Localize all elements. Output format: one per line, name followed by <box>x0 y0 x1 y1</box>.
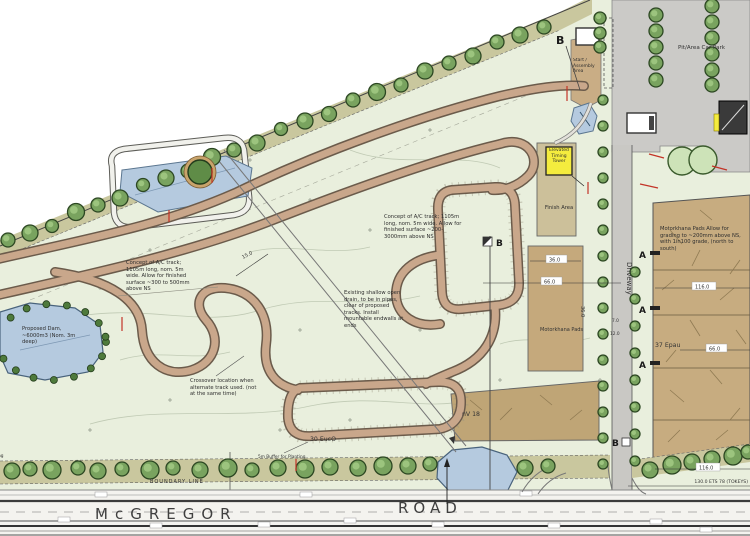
tree-icon <box>322 107 337 122</box>
pit-car-park-area <box>612 0 750 172</box>
dam-ring-tree-icon <box>43 301 50 308</box>
motorkhana-pads-rect <box>528 246 583 371</box>
tree-icon <box>649 24 663 38</box>
dam-ring-tree-icon <box>63 302 70 309</box>
tree-icon <box>642 462 658 478</box>
dim-116: 116.0 <box>695 285 709 291</box>
timing-tower-text: Elevated Timing Tower <box>547 148 571 165</box>
tree-icon <box>630 402 640 412</box>
tree-icon <box>91 198 105 212</box>
tree-icon <box>275 123 288 136</box>
tree-icon <box>598 381 608 391</box>
driveway-road <box>612 145 632 512</box>
dim-12: 12.0 <box>610 331 620 337</box>
start-assembly-label: Start / Assembly Area <box>573 58 599 98</box>
tree-icon <box>649 56 663 70</box>
euc-label: 30 EucO <box>310 436 336 443</box>
buffer-planting-label: 5m Buffer for Planting <box>258 454 306 460</box>
tree-icon <box>374 457 392 475</box>
dam-ring-tree-icon <box>30 374 37 381</box>
road-name-mcgregor: McGREGOR <box>95 505 238 523</box>
tree-icon <box>71 461 85 475</box>
tree-icon <box>4 463 20 479</box>
tree-icon <box>598 329 608 339</box>
tree-icon <box>442 56 456 70</box>
tree-icon <box>598 121 608 131</box>
marker-b-top: B <box>556 34 564 47</box>
tree-icon <box>705 78 719 92</box>
dam-ring-tree-icon <box>12 367 19 374</box>
tree-icon <box>630 321 640 331</box>
note-crossover: Crossover location when alternate track … <box>190 378 258 426</box>
tree-icon <box>598 433 608 443</box>
tree-icon <box>630 456 640 466</box>
tree-icon <box>598 95 608 105</box>
tree-icon <box>90 463 106 479</box>
dam-ring-tree-icon <box>99 353 106 360</box>
tree-icon <box>400 458 416 474</box>
tree-icon <box>630 348 640 358</box>
tree-icon <box>630 429 640 439</box>
tree-icon <box>68 204 85 221</box>
marker-a-3: A <box>639 361 646 371</box>
tree-icon <box>350 460 366 476</box>
note-existing-drain: Existing shallow open drain, to be in pi… <box>344 290 404 362</box>
tree-icon <box>630 294 640 304</box>
dam-ring-tree-icon <box>50 376 57 383</box>
tree-icon <box>724 447 742 465</box>
buffer-planting-label: 5m Buffer for Planting <box>0 453 4 459</box>
dim-116b: 116.0 <box>699 466 713 472</box>
site-plan: Elevated Timing Tower Concept of A/C tra… <box>0 0 750 536</box>
tree-icon <box>649 8 663 22</box>
dam-ring-tree-icon <box>23 305 30 312</box>
tree-icon <box>663 456 681 474</box>
site-plan-canvas: Elevated Timing Tower Concept of A/C tra… <box>0 0 750 536</box>
tree-icon <box>594 12 606 24</box>
tree-icon <box>322 459 338 475</box>
motorkhana-pads-label: Motorkhana Pads <box>540 327 583 333</box>
tree-icon <box>296 460 314 478</box>
tree-icon <box>537 20 551 34</box>
tree-icon <box>598 199 608 209</box>
tree-icon <box>649 73 663 87</box>
tree-icon <box>141 461 159 479</box>
tree-icon <box>594 27 606 39</box>
dam-ring-tree-icon <box>102 333 109 340</box>
marker-a-1: A <box>639 251 646 261</box>
marker-b-bottom: B <box>612 439 619 449</box>
tree-icon <box>598 251 608 261</box>
tree-icon <box>112 190 128 206</box>
marker-b-mid: B <box>496 239 503 249</box>
tree-icon <box>741 445 750 459</box>
building-detail <box>649 116 654 130</box>
road-name-road: ROAD <box>398 499 462 517</box>
dim-7: 7.0 <box>612 318 619 324</box>
tree-icon <box>245 463 259 477</box>
tree-icon <box>423 457 437 471</box>
dam-ring-tree-icon <box>95 320 102 327</box>
timing-tower-label: Elevated Timing Tower <box>547 148 571 175</box>
tree-icon <box>598 277 608 287</box>
dam-ring-tree-icon <box>82 309 89 316</box>
dam-ring-tree-icon <box>0 355 7 362</box>
tree-icon <box>270 460 286 476</box>
note-proposed-dam: Proposed Dam, ~6000m3 (Nom. 3m deep) <box>22 326 82 364</box>
tree-icon <box>512 27 528 43</box>
dam-ring-tree-icon <box>70 373 77 380</box>
pit-car-park-label: Pit/Area Car Park <box>678 45 726 51</box>
dim-66: 66.0 <box>544 280 555 286</box>
dim-66b: 66.0 <box>709 347 720 353</box>
tree-icon <box>598 225 608 235</box>
note-motorkhana-grading: Motorkhana Pads Allow for grading to ~20… <box>660 226 748 290</box>
tree-icon <box>630 375 640 385</box>
tree-icon <box>705 31 719 45</box>
tree-icon <box>227 143 241 157</box>
note-concept-right: Concept of A/C track; 1105m long, nom. 5… <box>384 214 464 276</box>
tree-icon <box>598 303 608 313</box>
boundary-line-label: BOUNDARY LINE <box>150 479 204 485</box>
tree-icon <box>417 63 433 79</box>
tree-icon <box>249 135 265 151</box>
driveway-label: Driveway <box>625 262 633 295</box>
finish-area-label: Finish Area <box>544 205 574 233</box>
tree-icon <box>137 179 150 192</box>
tree-icon <box>517 460 533 476</box>
dim-36-rot: 36.0 <box>579 306 585 317</box>
tree-icon <box>46 220 59 233</box>
tree-icon <box>705 15 719 29</box>
tree-icon <box>346 93 360 107</box>
tree-icon <box>369 84 386 101</box>
tree-icon <box>598 355 608 365</box>
epau-label: 37 Epau <box>655 342 680 349</box>
tree-icon <box>598 407 608 417</box>
tree-icon <box>22 225 38 241</box>
tree-icon <box>465 48 481 64</box>
tree-icon <box>598 459 608 469</box>
tree-icon <box>598 173 608 183</box>
tree-icon <box>297 113 313 129</box>
tree-icon <box>158 170 174 186</box>
tree-icon <box>1 233 15 247</box>
tree-icon <box>115 462 129 476</box>
tree-icon <box>43 461 61 479</box>
tree-icon <box>192 462 208 478</box>
tree-icon <box>598 147 608 157</box>
dim-36: 36.0 <box>549 258 560 264</box>
marker-a-2: A <box>639 306 646 316</box>
tree-icon <box>649 40 663 54</box>
tree-icon <box>541 459 555 473</box>
tree-icon <box>705 63 719 77</box>
tree-icon <box>23 462 37 476</box>
tree-icon <box>219 459 237 477</box>
dim-130: 130.0 ETS 78 (TOKEYS) <box>694 479 748 485</box>
tree-icon <box>594 41 606 53</box>
tree-icon <box>490 35 504 49</box>
tree-icon <box>394 78 408 92</box>
nv18-label: nV 18 <box>462 411 480 418</box>
highlight-strip <box>714 114 719 131</box>
tree-icon <box>166 461 180 475</box>
dam-ring-tree-icon <box>87 365 94 372</box>
dam-ring-tree-icon <box>7 314 14 321</box>
tree-icon <box>705 0 719 13</box>
